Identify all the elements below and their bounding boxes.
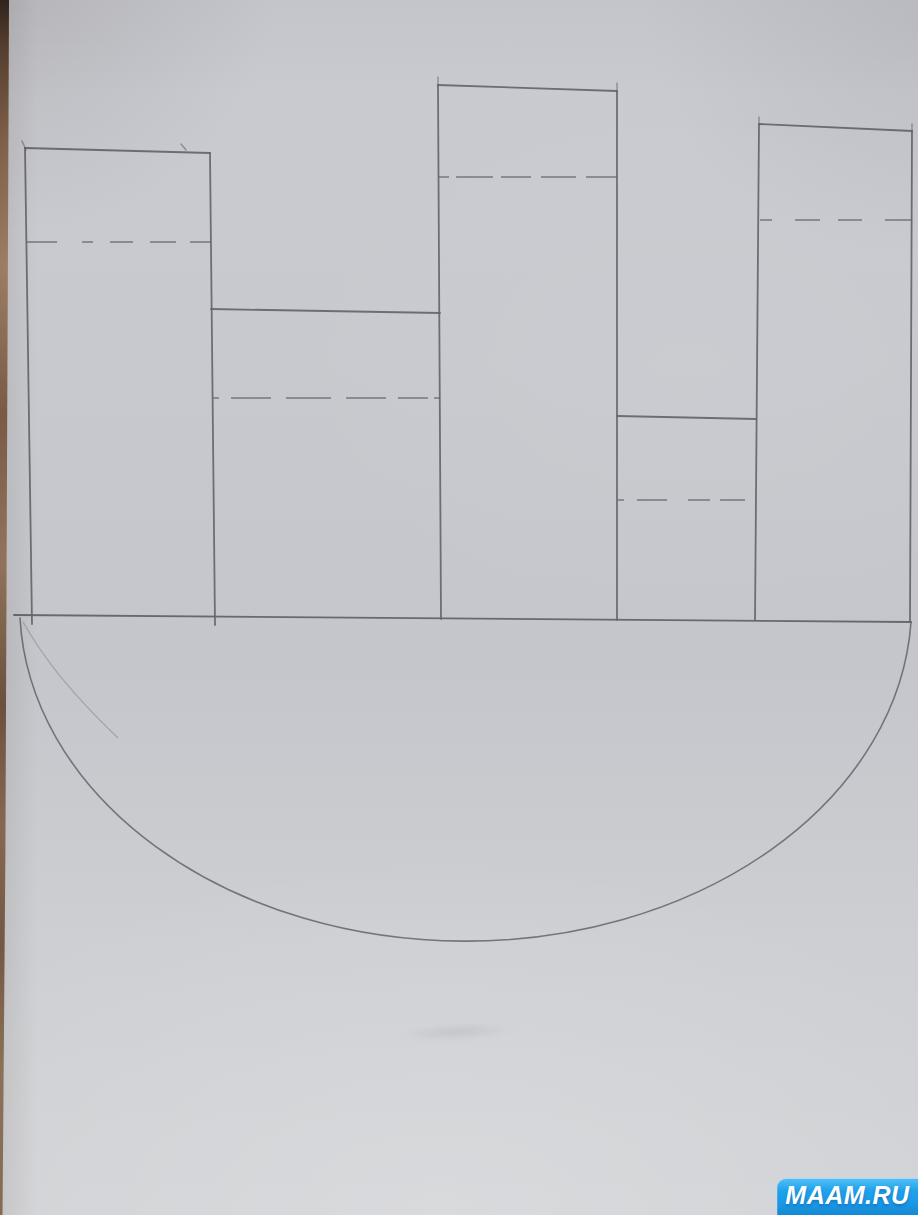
funnel-top-edge	[25, 148, 210, 153]
hull-baseline	[14, 615, 911, 622]
funnel-side-edge	[25, 148, 32, 624]
hull-arc	[20, 618, 911, 941]
funnel-side-edge	[438, 85, 441, 619]
funnel-side-edge	[755, 124, 759, 620]
funnel-side-edge	[210, 153, 215, 625]
pencil-overshoot-tick	[22, 141, 26, 150]
pencil-overshoot-tick	[181, 144, 186, 150]
funnel-top-edge	[211, 309, 440, 313]
funnel-top-edge	[438, 85, 617, 91]
photo-of-craft-template: MAAM.RU	[0, 0, 918, 1215]
funnel-top-edge	[759, 124, 912, 131]
watermark-text: MAAM.RU	[785, 1181, 909, 1212]
hull-arc-ghost-stroke	[23, 622, 118, 738]
funnel-top-edge	[617, 416, 756, 419]
funnel-side-edge	[910, 131, 912, 621]
maam-watermark: MAAM.RU	[777, 1178, 918, 1215]
